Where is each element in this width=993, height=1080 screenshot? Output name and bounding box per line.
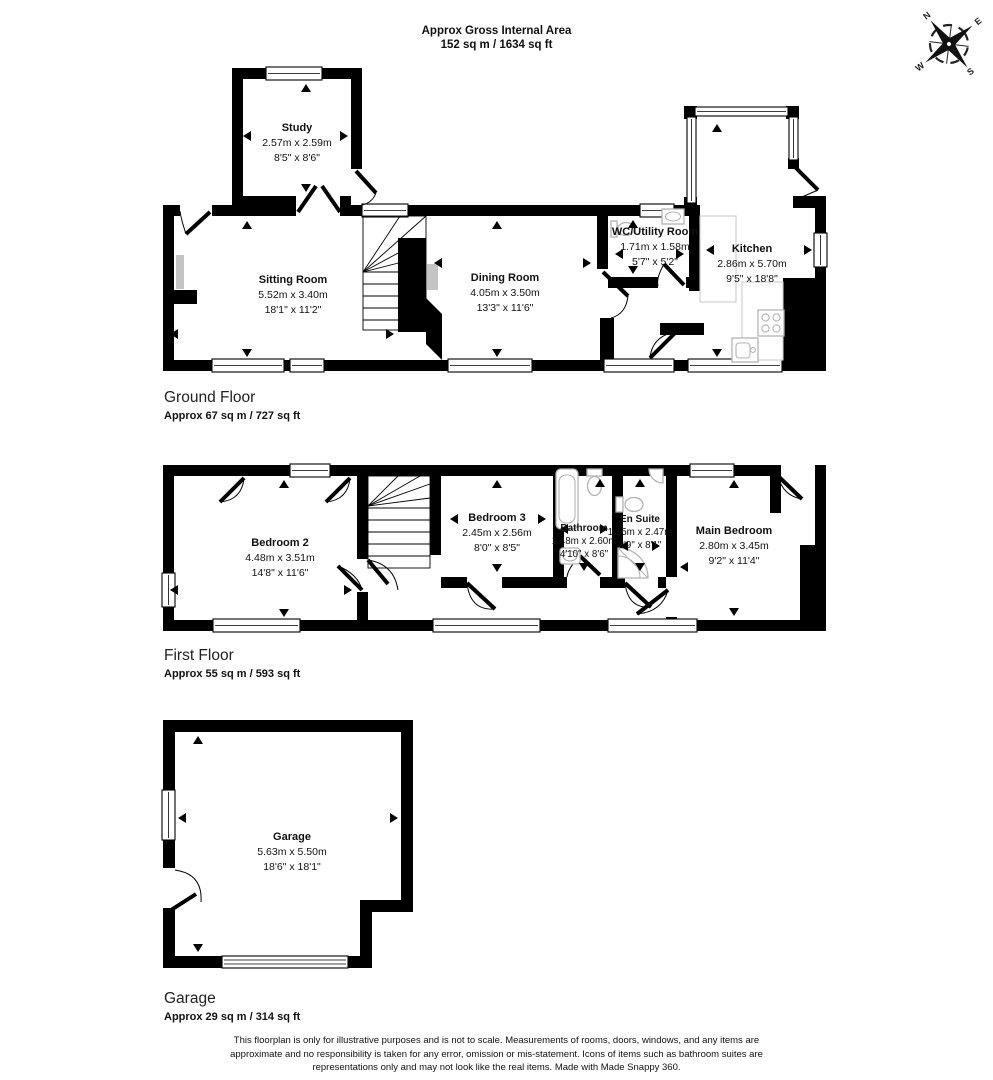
floorplan-drawing: N E S W: [0, 0, 993, 1080]
first-floor-room-labels: Bedroom 2 4.48m x 3.51m 14'8" x 11'6" Be…: [245, 512, 772, 579]
first-floor-door-gaps: [781, 465, 815, 476]
radiator: [176, 255, 184, 289]
room-label-garage: Garage: [273, 831, 311, 843]
garage-door-gaps: [163, 868, 175, 908]
room-label-dining-room: Dining Room: [471, 272, 540, 284]
compass-rose-icon: N E S W: [891, 0, 993, 101]
svg-text:1.71m x 1.58m: 1.71m x 1.58m: [620, 241, 690, 253]
svg-text:4.48m x 3.51m: 4.48m x 3.51m: [245, 552, 315, 564]
first-floor-plan: Bedroom 2 4.48m x 3.51m 14'8" x 11'6" Be…: [162, 464, 826, 632]
room-label-wc-utility: WC/Utility Room: [612, 226, 698, 238]
svg-text:2.80m x 3.45m: 2.80m x 3.45m: [699, 540, 769, 552]
svg-text:2.57m x 2.59m: 2.57m x 2.59m: [262, 137, 332, 149]
room-label-study: Study: [282, 122, 313, 134]
room-label-bedroom-3: Bedroom 3: [468, 512, 525, 524]
room-label-bedroom-2: Bedroom 2: [251, 537, 308, 549]
bathtub-icon: [556, 469, 578, 529]
compass-w: W: [913, 60, 926, 73]
kitchen-sink-icon: [732, 338, 758, 362]
garage-door: [222, 956, 348, 968]
ensuite-toilet-icon: [616, 497, 643, 512]
room-label-en-suite: En Suite: [620, 514, 660, 525]
floorplan-page: { "header": { "title": "Approx Gross Int…: [0, 0, 993, 1080]
svg-text:2.45m x 2.56m: 2.45m x 2.56m: [462, 527, 532, 539]
garage-walls: [163, 720, 413, 968]
svg-text:5'7" x 5'2": 5'7" x 5'2": [632, 256, 678, 268]
garage-windows: [162, 790, 348, 968]
compass-n: N: [921, 10, 932, 22]
svg-text:13'3" x 11'6": 13'3" x 11'6": [477, 302, 534, 314]
svg-text:18'6" x 18'1": 18'6" x 18'1": [263, 861, 321, 873]
garage-plan: Garage 5.63m x 5.50m 18'6" x 18'1": [162, 720, 413, 968]
first-floor-stairs-icon: [368, 476, 430, 568]
svg-text:9'2" x 11'4": 9'2" x 11'4": [709, 555, 760, 567]
wc-sink-icon: [662, 209, 684, 224]
compass-s: S: [965, 66, 976, 78]
svg-text:3'9" x 8'1": 3'9" x 8'1": [619, 540, 662, 551]
ground-floor-plan: Study 2.57m x 2.59m 8'5" x 8'6" Sitting …: [163, 67, 827, 372]
svg-text:8'5" x 8'6": 8'5" x 8'6": [274, 152, 320, 164]
room-label-sitting-room: Sitting Room: [259, 274, 328, 286]
svg-text:1.15m x 2.47m: 1.15m x 2.47m: [608, 527, 673, 538]
svg-text:5.52m x 3.40m: 5.52m x 3.40m: [258, 289, 328, 301]
svg-text:4.05m x 3.50m: 4.05m x 3.50m: [470, 287, 540, 299]
svg-text:18'1" x 11'2": 18'1" x 11'2": [265, 304, 322, 316]
garage-room-labels: Garage 5.63m x 5.50m 18'6" x 18'1": [257, 831, 327, 873]
room-label-kitchen: Kitchen: [732, 243, 773, 255]
svg-text:4'10" x 8'6": 4'10" x 8'6": [560, 549, 609, 560]
fireplace: [427, 264, 438, 290]
svg-text:14'8" x 11'6": 14'8" x 11'6": [252, 567, 309, 579]
ground-floor-door-gaps: [180, 169, 686, 318]
ensuite-corner-sink-icon: [649, 469, 663, 483]
room-label-bathroom: Bathroom: [560, 523, 607, 534]
svg-text:9'5" x 18'8": 9'5" x 18'8": [726, 273, 778, 285]
room-label-main-bedroom: Main Bedroom: [696, 525, 773, 537]
svg-text:8'0" x 8'5": 8'0" x 8'5": [474, 542, 520, 554]
svg-text:5.63m x 5.50m: 5.63m x 5.50m: [257, 846, 327, 858]
compass-e: E: [973, 15, 984, 27]
svg-text:2.86m x 5.70m: 2.86m x 5.70m: [717, 258, 787, 270]
hob-icon: [758, 310, 784, 336]
